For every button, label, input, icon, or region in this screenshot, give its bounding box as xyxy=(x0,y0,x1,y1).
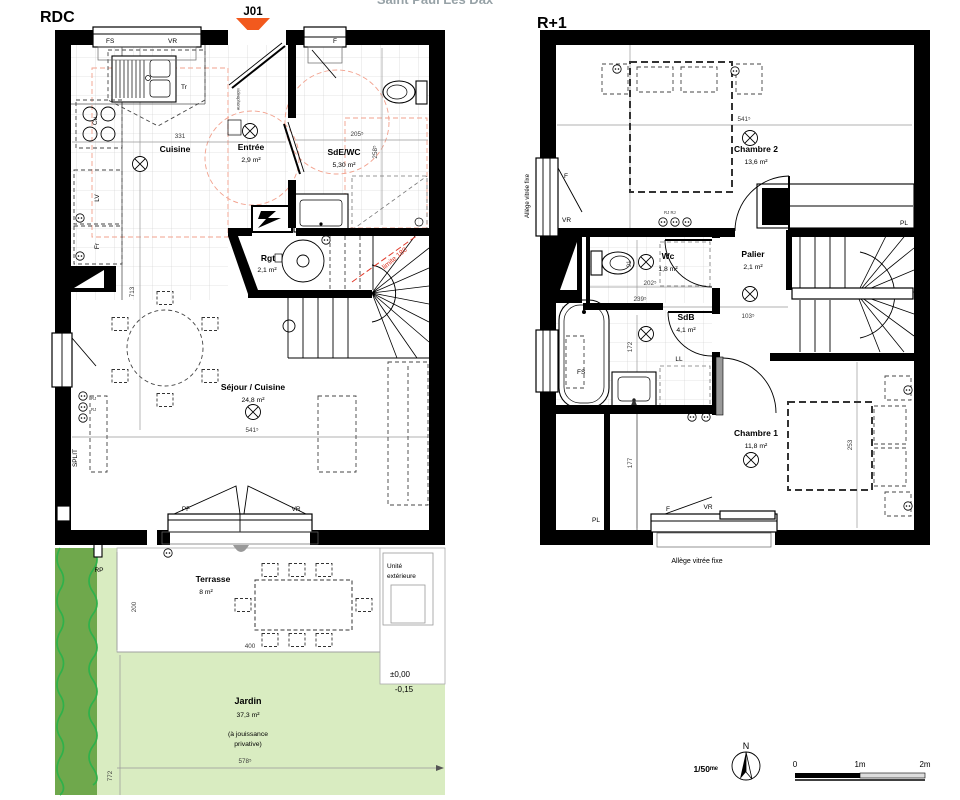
videophone-label: videophone xyxy=(236,88,241,111)
vr-top-label: VR xyxy=(168,38,177,45)
level-terrace: ±0,00 xyxy=(390,670,411,679)
scale-0: 0 xyxy=(793,760,798,769)
rgt-area: 2,1 m² xyxy=(257,267,277,274)
light-palier-icon xyxy=(743,287,758,302)
rj-label-a: RJ xyxy=(91,396,96,401)
allege-bottom-label: Allège vitrée fixe xyxy=(671,558,722,565)
entree-area: 2,9 m² xyxy=(241,157,261,164)
sdb-sink xyxy=(612,372,656,408)
stair-handrail xyxy=(792,288,913,299)
pl-under-stairs-label: PL xyxy=(592,517,600,524)
cu-label: Cu xyxy=(92,116,99,125)
dim-103: 103⁵ xyxy=(741,313,755,320)
light-wc-icon xyxy=(639,255,654,270)
light-entree-icon xyxy=(243,124,258,139)
chambre1-name: Chambre 1 xyxy=(734,428,778,438)
dim-400: 400 xyxy=(245,643,256,650)
scale-1m: 1m xyxy=(854,760,865,769)
terrace-socket-icon xyxy=(164,549,172,557)
rgt-name: Rgt xyxy=(261,253,275,263)
jardin-area: 37,3 m² xyxy=(236,712,260,719)
sejour-name: Séjour / Cuisine xyxy=(221,382,286,392)
dim-772: 772 xyxy=(107,770,114,781)
vanity-sink xyxy=(294,194,348,232)
sde-area: 5,30 m² xyxy=(332,162,356,169)
chambre1-area: 11,8 m² xyxy=(745,443,768,450)
kitchen-sink xyxy=(112,56,176,102)
scale-label: 1/50ᵐᵉ xyxy=(693,764,718,774)
f-ch1-label: F xyxy=(666,506,670,513)
unit-marker-label: J01 xyxy=(243,6,263,18)
sdb-area: 4,1 m² xyxy=(676,327,696,334)
exterior-unit-label-2: extérieure xyxy=(387,573,416,580)
entree-name: Entrée xyxy=(238,142,265,152)
garden-area: Unité extérieure RP 200 400 578⁵ 772 ±0,… xyxy=(55,543,445,795)
dim-205: 205⁵ xyxy=(350,131,364,138)
rj-label-r1: RJ RJ xyxy=(664,210,676,215)
sdb-name: SdB xyxy=(678,312,695,322)
floorplan-sheet: Saint Paul Les Dax Unité extérieure RP xyxy=(0,0,960,800)
pf-label: PF xyxy=(182,506,190,513)
split-label: SPLIT xyxy=(72,449,79,467)
r1-title: R+1 xyxy=(537,15,567,32)
pl-right-label: PL xyxy=(900,220,908,227)
dim-91: 91 xyxy=(626,260,633,268)
terrasse-area: 8 m² xyxy=(199,589,213,596)
palier-name: Palier xyxy=(741,249,765,259)
sdb-window xyxy=(536,330,558,392)
dim-202: 202⁵ xyxy=(643,280,657,287)
vr-ch1-label: VR xyxy=(703,504,712,511)
wardrobe-ch2 xyxy=(757,184,914,228)
dim-253: 253 xyxy=(847,439,854,450)
palier-area: 2,1 m² xyxy=(743,264,763,271)
light-sdb-icon xyxy=(639,327,654,342)
dim-239: 239⁵ xyxy=(633,296,647,303)
sejour-area: 24,8 m² xyxy=(241,397,265,404)
terrasse-name: Terrasse xyxy=(196,574,231,584)
level-garden: -0,15 xyxy=(395,685,414,694)
tr-label: Tr xyxy=(181,84,188,91)
dim-541-rdc: 541⁵ xyxy=(245,427,259,434)
terrace xyxy=(117,548,380,652)
ll-label: LL xyxy=(675,356,683,363)
rp-label: RP xyxy=(94,567,103,574)
electrical-panel xyxy=(252,206,292,232)
toilet xyxy=(383,81,427,104)
bathtub xyxy=(559,300,609,408)
jardin-note-1: (à jouissance xyxy=(228,731,268,738)
dim-713: 713 xyxy=(129,286,136,297)
scale-2m: 2m xyxy=(919,760,930,769)
floorplan-drawing: Saint Paul Les Dax Unité extérieure RP xyxy=(0,0,960,800)
f-ch2-label: F xyxy=(564,173,568,180)
light-cuisine-icon xyxy=(133,157,148,172)
jardin-name: Jardin xyxy=(234,696,261,706)
vr-ch2-label: VR xyxy=(562,217,571,224)
project-title-partial: Saint Paul Les Dax xyxy=(377,0,494,7)
sde-name: SdE/WC xyxy=(327,147,360,157)
fs-label: FS xyxy=(106,38,115,45)
dim-177: 177 xyxy=(627,457,634,468)
rj-label-b: RJ xyxy=(91,407,96,412)
rp-fixture xyxy=(94,543,102,557)
dim-200: 200 xyxy=(131,601,138,612)
light-sejour-icon xyxy=(246,405,261,420)
lv-label: LV xyxy=(94,194,101,202)
dim-172: 172 xyxy=(627,341,634,352)
exterior-unit: Unité extérieure xyxy=(383,553,433,625)
dim-541-r1: 541⁵ xyxy=(737,116,751,123)
north-label: N xyxy=(743,741,750,751)
exterior-unit-label-1: Unité xyxy=(387,563,403,570)
dim-331: 331 xyxy=(175,133,186,140)
rdc-title: RDC xyxy=(40,9,75,26)
chambre2-area: 13,6 m² xyxy=(744,159,768,166)
light-chambre1-icon xyxy=(744,453,759,468)
fr-label: Fr xyxy=(94,242,101,249)
cuisine-name: Cuisine xyxy=(160,144,191,154)
wc-area: 1,8 m² xyxy=(658,266,678,273)
allege-left-label: Allège vitrée fixe xyxy=(525,173,531,218)
fs-label-r1: FS xyxy=(577,369,586,376)
jardin-note-2: privative) xyxy=(234,741,262,748)
dim-258: 258⁵ xyxy=(372,145,379,159)
f-top-label: F xyxy=(333,38,337,45)
dim-578: 578⁵ xyxy=(238,758,252,765)
wc-name: Wc xyxy=(662,251,675,261)
vr-bottom-label: VR xyxy=(291,506,300,513)
chambre2-name: Chambre 2 xyxy=(734,144,778,154)
